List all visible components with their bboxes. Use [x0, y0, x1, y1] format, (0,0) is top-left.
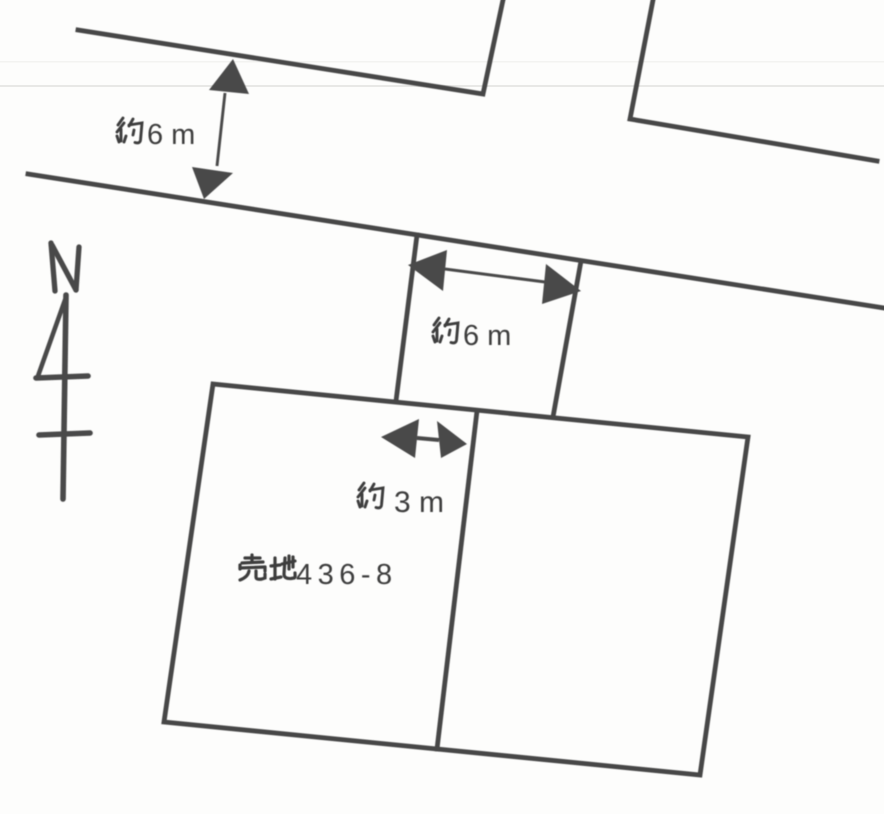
svg-text:6 m: 6 m — [147, 119, 195, 151]
svg-text:3 m: 3 m — [394, 486, 444, 519]
svg-text:6 m: 6 m — [463, 320, 511, 352]
svg-text:436-8: 436-8 — [296, 559, 398, 591]
